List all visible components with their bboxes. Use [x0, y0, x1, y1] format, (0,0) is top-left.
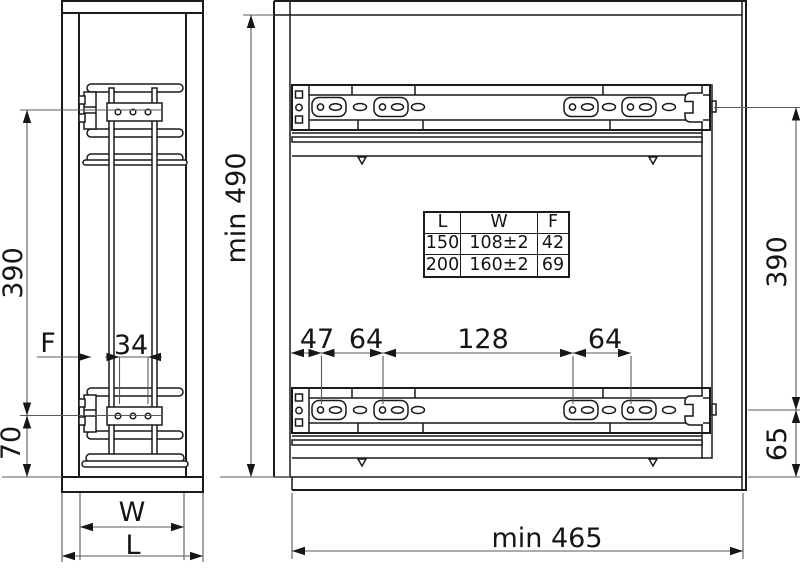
dim-label-L: L [125, 530, 140, 561]
side-view: min 490 390 65 47 64 128 64 min 465 [220, 1, 800, 559]
pullout-unit-technical-drawing: 390 70 F 34 W L [0, 0, 800, 568]
dim-label-W: W [119, 497, 146, 528]
top-drawer-slide [292, 85, 710, 130]
bottom-panel [292, 436, 702, 466]
spec-header-W: W [461, 213, 538, 234]
spec-cell: 108±2 [461, 234, 538, 255]
top-mounting-plate [107, 103, 162, 121]
technical-drawing-page: 390 70 F 34 W L [0, 0, 800, 568]
dim-label-70: 70 [0, 426, 27, 460]
dim-label-64-right: 64 [588, 324, 622, 355]
dim-label-390-front: 390 [0, 247, 29, 299]
dim-label-min-490: min 490 [221, 152, 252, 263]
dim-label-min-465: min 465 [491, 523, 602, 554]
spec-table: L W F 150 108±2 42 200 160±2 69 [423, 211, 570, 278]
spec-cell: 150 [425, 234, 461, 255]
pullout-basket-frame [79, 84, 188, 467]
spec-cell: 42 [538, 234, 568, 255]
dim-label-390-side: 390 [762, 236, 793, 288]
dim-label-47: 47 [300, 324, 334, 355]
bottom-drawer-slide [292, 388, 710, 433]
dim-label-128: 128 [457, 324, 509, 355]
front-view: 390 70 F 34 W L [0, 1, 203, 562]
dim-label-64-left: 64 [349, 324, 383, 355]
spec-cell: 160±2 [461, 255, 538, 276]
dim-label-F: F [40, 328, 56, 359]
spec-header-F: F [538, 213, 568, 234]
dim-label-65: 65 [762, 427, 793, 461]
spec-cell: 200 [425, 255, 461, 276]
spec-cell: 69 [538, 255, 568, 276]
front-view-dimensions: 390 70 F 34 W L [0, 110, 203, 562]
bottom-slide-bracket [79, 395, 96, 432]
spec-header-L: L [425, 213, 461, 234]
top-panel [292, 133, 702, 164]
dim-label-34: 34 [114, 330, 148, 361]
